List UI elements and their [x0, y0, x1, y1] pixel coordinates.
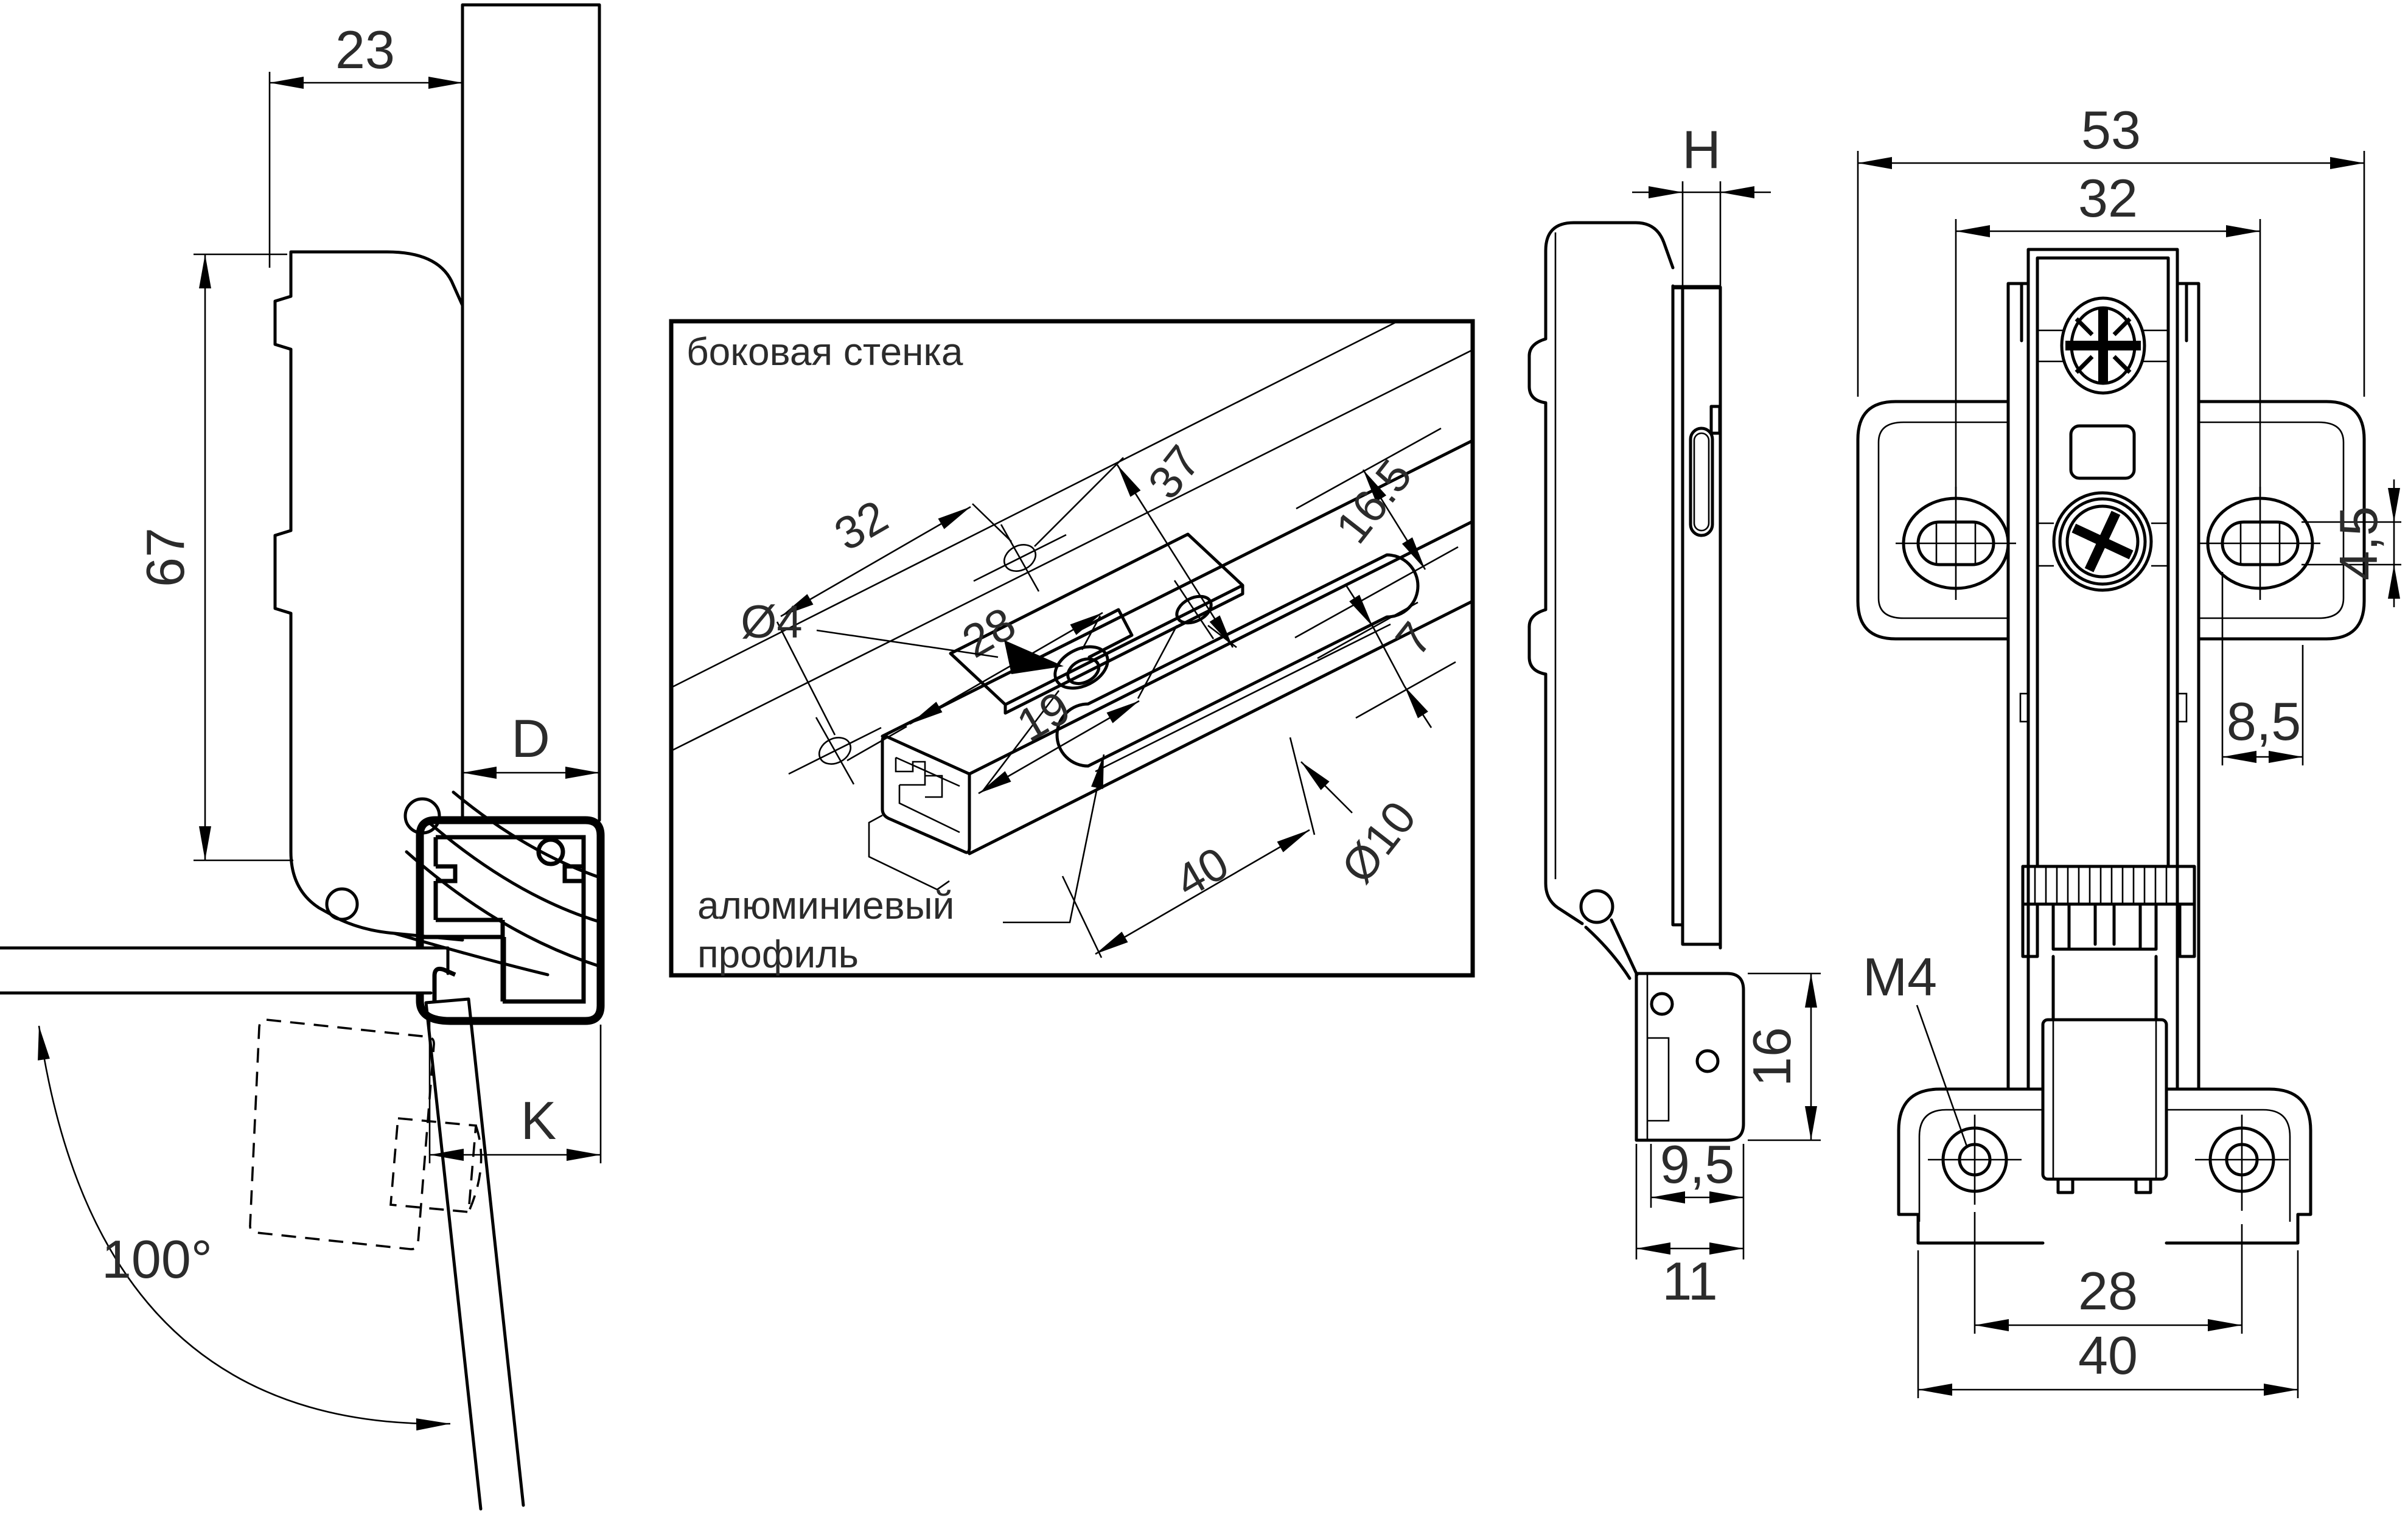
dim-53-label: 53 — [2081, 100, 2141, 160]
dim-K-label: K — [521, 1090, 557, 1151]
cabinet-wall-strip — [462, 5, 599, 820]
profile-callout: алюминиевый профиль — [697, 754, 1104, 976]
dim-8-5: 8,5 — [2222, 572, 2303, 765]
dim-32f-label: 32 — [2078, 168, 2138, 228]
foot-left-inner — [1919, 1110, 2043, 1222]
dim-9-5-label: 9,5 — [1660, 1134, 1734, 1194]
wall-hole-1 — [974, 524, 1066, 591]
view-inset: боковая стенка — [671, 321, 1473, 976]
dim-40f-label: 40 — [2078, 1325, 2138, 1385]
door-strip — [1683, 287, 1720, 948]
interlock-plates — [2023, 904, 2194, 956]
dim-iso-d10: Ø10 — [1301, 762, 1426, 893]
profile-callout-line2: профиль — [697, 932, 859, 976]
dim-67-label: 67 — [135, 528, 195, 587]
dim-iso-d4-label: Ø4 — [741, 596, 802, 648]
dim-11-label: 11 — [1662, 1251, 1717, 1311]
view-open-side: 23 67 D K 100° — [0, 5, 601, 1509]
dim-H: H — [1632, 119, 1771, 286]
dim-9-5: 9,5 — [1651, 1134, 1743, 1259]
foot-right — [2166, 1089, 2311, 1243]
drawing-sheet: 23 67 D K 100° боковая стенка — [0, 0, 2408, 1515]
dim-iso-16-5-label: 16.5 — [1326, 450, 1422, 553]
dim-angle: 100° — [39, 1026, 450, 1424]
pivot-lower — [327, 889, 357, 919]
dim-K: K — [430, 1015, 601, 1163]
dim-angle-label: 100° — [102, 1229, 212, 1289]
dim-M4-label: M4 — [1863, 947, 1937, 1007]
open-position-dashed — [250, 1020, 481, 1249]
lower-bracket — [2043, 1020, 2166, 1179]
pozidriv-screw — [2037, 298, 2168, 393]
view-closed-side: H 16 9,5 — [1529, 119, 1821, 1311]
bar-cut-end — [882, 736, 969, 852]
dim-D: D — [462, 708, 599, 817]
bracket-hole-2 — [1697, 1051, 1718, 1071]
door-tab — [1711, 406, 1720, 433]
wing-left-inner — [1879, 422, 2008, 618]
dim-16: 16 — [1742, 973, 1821, 1140]
dim-H-label: H — [1682, 119, 1721, 179]
dim-iso-7: 7 — [1317, 585, 1456, 728]
square-hole — [2071, 426, 2134, 478]
profile-callout-line1: алюминиевый — [697, 883, 954, 927]
foot-left — [1899, 1089, 2043, 1243]
hinge-technical-drawing: 23 67 D K 100° боковая стенка — [0, 0, 2408, 1515]
view-front: 53 32 — [1858, 100, 2401, 1398]
door-slot-inner — [1694, 433, 1709, 531]
m4-hole-right — [2195, 1115, 2289, 1211]
dim-16-label: 16 — [1742, 1027, 1802, 1087]
bracket-tab-left — [2058, 1179, 2073, 1193]
knurl — [2023, 866, 2194, 904]
dim-28f: 28 — [1975, 1212, 2242, 1334]
lower-column — [2053, 956, 2156, 1020]
plate-hole-2-centerline — [1174, 580, 1213, 639]
inset-title: боковая стенка — [686, 330, 963, 374]
dim-23: 23 — [270, 19, 462, 268]
wall-hole-2 — [789, 717, 881, 784]
closed-boot — [1529, 223, 1673, 924]
lower-bracket-inner — [2053, 1020, 2156, 1179]
m4-hole-left — [1928, 1115, 2022, 1205]
dim-67: 67 — [135, 254, 293, 860]
dim-iso-40-label: 40 — [1167, 837, 1237, 908]
door-panel-closed — [0, 948, 448, 993]
dim-iso-32-label: 32 — [826, 490, 896, 561]
dim-M4: M4 — [1863, 947, 1967, 1146]
dim-23-label: 23 — [335, 19, 395, 80]
phillips-screw — [2037, 493, 2168, 590]
closed-links — [1586, 920, 1637, 978]
dim-4-5-label: 4,5 — [2328, 506, 2389, 580]
closed-pivot — [1581, 891, 1613, 922]
door-panel-open — [426, 999, 523, 1509]
bottom-bracket-inner — [1647, 973, 1669, 1140]
dim-8-5-label: 8,5 — [2227, 691, 2301, 751]
hinge-arm-outline — [275, 252, 462, 940]
bracket-tab-right — [2136, 1179, 2151, 1193]
dim-28f-label: 28 — [2078, 1261, 2138, 1321]
oval-slot-right — [2200, 487, 2320, 600]
dim-D-label: D — [511, 708, 550, 768]
oval-slot-left — [1896, 487, 2016, 600]
bracket-hole-1 — [1652, 994, 1672, 1014]
wing-left — [1858, 402, 2008, 639]
